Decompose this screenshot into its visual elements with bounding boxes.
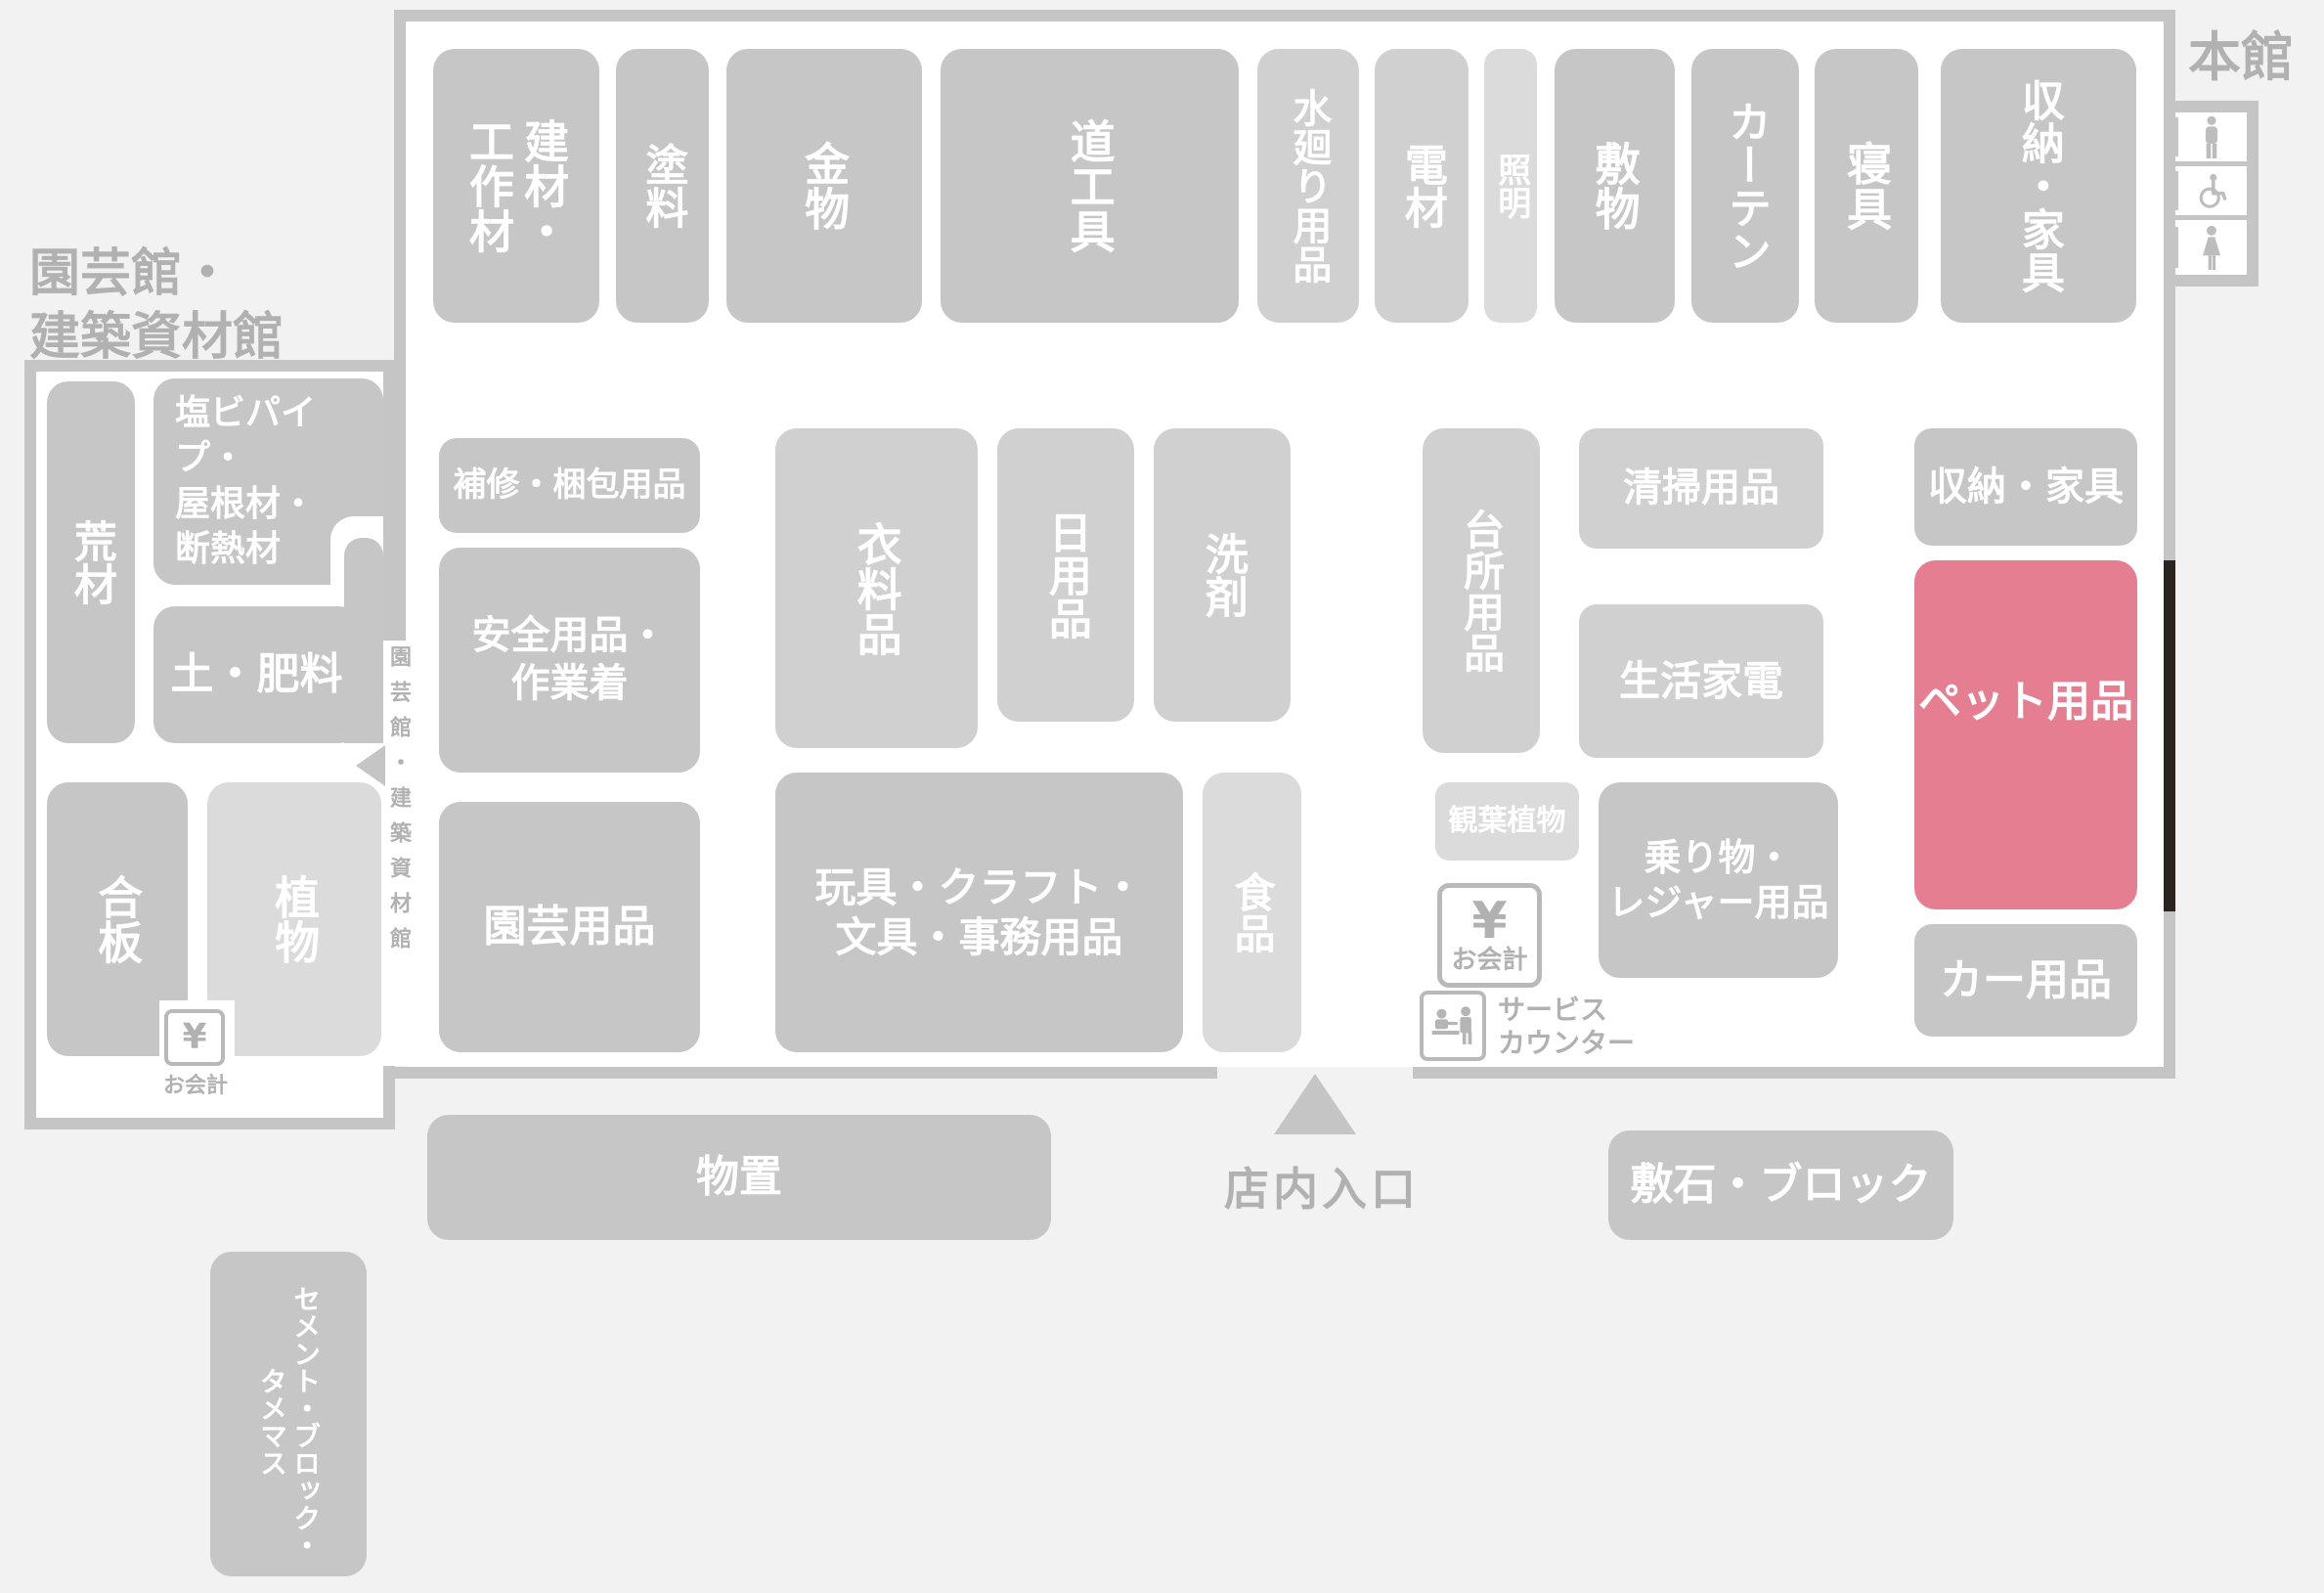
wheelchair-accessible-restroom	[2175, 166, 2247, 215]
main-wall-bottom-right	[1413, 1067, 2175, 1079]
checkout-counter: ¥ お会計	[1437, 883, 1542, 988]
block-storage-furniture: 収納・家具	[1941, 49, 2136, 323]
block-repair-packing: 補修・梱包用品	[439, 438, 700, 533]
female-restroom	[2175, 220, 2247, 275]
main-wall-right-upper	[2164, 22, 2175, 101]
main-hall-title: 本館	[2188, 14, 2294, 91]
annex-wall-right-lower	[383, 1066, 395, 1129]
block-food: 食品	[1203, 773, 1301, 1052]
store-floor-map: 園芸館・建築資材館 本館 園芸館・ 建築資材館 建材・ 工作材 塗料 金物 道工…	[0, 0, 2324, 1593]
block-cement-blocks: セメント・ブロック・ タメマス	[210, 1252, 367, 1576]
block-soil-fertilizer: 土・肥料	[153, 606, 360, 743]
block-houseplants: 観葉植物	[1435, 782, 1579, 861]
male-restroom	[2175, 112, 2247, 161]
annex-title: 園芸館・ 建築資材館	[29, 243, 284, 370]
passage-arrow-left-icon	[356, 745, 385, 786]
annex-wall-right-upper	[383, 372, 395, 641]
block-rugs: 敷物	[1555, 49, 1675, 323]
annex-checkout-counter: ¥	[164, 1009, 225, 1066]
yen-icon: ¥	[182, 1020, 206, 1055]
block-plumbing-supplies: 水廻り用品	[1257, 49, 1359, 323]
main-wall-right-mid	[2164, 287, 2175, 560]
block-curtains: カーテン	[1691, 49, 1799, 323]
block-detergent: 洗剤	[1154, 428, 1291, 722]
block-paint: 塗料	[616, 49, 709, 323]
entrance-triangle-icon	[1274, 1074, 1356, 1134]
block-rough-lumber: 荒材	[47, 381, 135, 743]
checkout-label: お会計	[1451, 947, 1527, 975]
wheelchair-accessible-icon	[2194, 172, 2229, 209]
block-cleaning-supplies: 清掃用品	[1579, 428, 1823, 549]
block-car-supplies: カー用品	[1914, 924, 2137, 1037]
restroom-door-stub	[2175, 117, 2178, 156]
male-restroom-icon	[2202, 115, 2221, 158]
block-building-materials: 建材・ 工作材	[433, 49, 599, 323]
restroom-door-stub	[2175, 171, 2178, 210]
main-wall-top	[394, 10, 2175, 22]
passage-label: 園芸館・建築資材館	[382, 645, 414, 962]
block-storage-sheds: 物置	[427, 1115, 1051, 1240]
block-bedding: 寝具	[1815, 49, 1918, 323]
service-counter-icon	[1430, 1002, 1475, 1049]
wall-door-marker	[2164, 560, 2175, 911]
block-daily-necessities: 日用品	[997, 428, 1134, 722]
entrance-label: 店内入口	[1224, 1154, 1420, 1218]
block-gardening-supplies: 園芸用品	[439, 802, 700, 1052]
block-clothing: 衣料品	[775, 428, 978, 748]
block-pet-supplies-highlighted: ペット用品	[1914, 560, 2137, 909]
block-vehicles-leisure: 乗り物・ レジャー用品	[1599, 782, 1838, 978]
block-storage-furniture-2: 収納・家具	[1914, 428, 2137, 546]
block-electrical-materials: 電材	[1375, 49, 1469, 323]
service-counter-label: サービス カウンター	[1498, 994, 1635, 1060]
main-wall-bottom-left	[394, 1067, 1217, 1079]
block-safety-workwear: 安全用品・ 作業着	[439, 548, 700, 773]
annex-checkout-label: お会計	[147, 1068, 244, 1099]
restroom-door-stub	[2175, 227, 2178, 268]
yen-icon: ¥	[1471, 896, 1507, 947]
block-paving-blocks: 敷石・ブロック	[1608, 1130, 1953, 1240]
annex-wall-left	[24, 372, 36, 1129]
block-kitchen-supplies: 台所用品	[1423, 428, 1540, 753]
block-toys-crafts-stationery: 玩具・クラフト・ 文具・事務用品	[775, 773, 1183, 1052]
annex-wall-bottom	[24, 1118, 395, 1129]
main-wall-right-lower	[2164, 911, 2175, 1079]
female-restroom-icon	[2201, 225, 2222, 270]
main-wall-left	[394, 22, 406, 641]
service-counter	[1420, 991, 1486, 1061]
block-tools: 道工具	[941, 49, 1239, 323]
block-lighting: 照明	[1484, 49, 1537, 323]
block-hardware: 金物	[726, 49, 922, 323]
block-home-appliances: 生活家電	[1579, 604, 1823, 758]
